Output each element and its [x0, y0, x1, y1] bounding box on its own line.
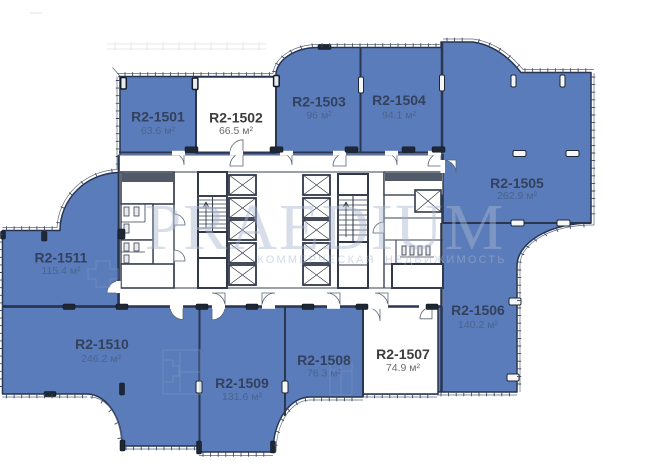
- svg-text:R2-1504: R2-1504: [372, 92, 426, 108]
- svg-text:R2-1502: R2-1502: [209, 110, 263, 126]
- svg-text:76.3 м²: 76.3 м²: [307, 368, 342, 380]
- svg-text:74.9 м²: 74.9 м²: [386, 362, 421, 374]
- svg-text:66.5 м²: 66.5 м²: [219, 125, 254, 137]
- svg-text:262.9 м²: 262.9 м²: [497, 190, 537, 202]
- svg-text:R2-1506: R2-1506: [451, 302, 505, 318]
- svg-text:131.6 м²: 131.6 м²: [222, 391, 262, 403]
- svg-text:R2-1509: R2-1509: [215, 375, 269, 391]
- svg-text:R2-1510: R2-1510: [75, 336, 129, 352]
- svg-text:R2-1505: R2-1505: [490, 175, 544, 191]
- svg-text:115.4 м²: 115.4 м²: [41, 265, 81, 277]
- svg-text:94.1 м²: 94.1 м²: [382, 110, 417, 122]
- svg-text:140.2 м²: 140.2 м²: [458, 319, 498, 331]
- svg-text:R2-1511: R2-1511: [35, 250, 88, 266]
- svg-text:КОММЕРЧЕСКАЯ НЕДВИЖИМОСТЬ: КОММЕРЧЕСКАЯ НЕДВИЖИМОСТЬ: [257, 254, 506, 266]
- svg-text:96 м²: 96 м²: [306, 110, 332, 122]
- svg-text:R2-1507: R2-1507: [376, 346, 430, 362]
- svg-text:R2-1501: R2-1501: [131, 109, 185, 125]
- svg-text:R2-1503: R2-1503: [292, 94, 346, 110]
- svg-text:246.2 м²: 246.2 м²: [81, 353, 121, 365]
- svg-text:63.6 м²: 63.6 м²: [141, 125, 176, 137]
- svg-text:R2-1508: R2-1508: [297, 352, 351, 368]
